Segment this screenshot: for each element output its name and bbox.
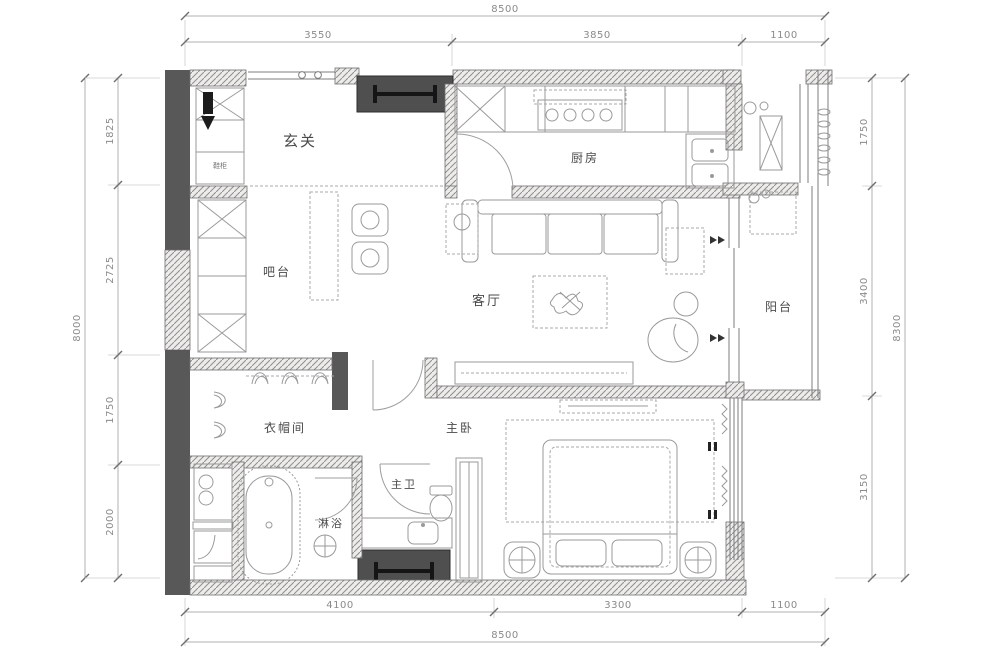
wardrobe — [456, 458, 482, 582]
window-balcony-rail — [812, 186, 818, 398]
door-shower — [315, 478, 357, 520]
door-bedroom-hall — [373, 360, 423, 410]
sofa — [462, 200, 678, 262]
sliding-door-balcony — [710, 198, 739, 382]
armchair — [648, 318, 698, 362]
dimension-bottom: 4100 3300 1100 8500 — [181, 598, 829, 646]
room-label-shoe-cabinet: 鞋柜 — [213, 161, 227, 170]
dim-bottom-total: 8500 — [491, 630, 518, 641]
wall-left-upper — [165, 70, 190, 250]
tv-cabinet-bedroom — [560, 400, 656, 413]
curtain-icons — [708, 404, 727, 519]
stove — [534, 90, 626, 130]
dim-top-total: 8500 — [491, 4, 518, 15]
room-label-living-room: 客厅 — [472, 293, 502, 309]
dim-left-seg-1: 2725 — [105, 256, 116, 283]
dimension-left: 8000 1825 2725 1750 2000 — [72, 74, 160, 582]
wall-left-hatched — [165, 250, 190, 350]
washbasin-cabinet — [194, 464, 232, 520]
bedside-table-right — [680, 542, 716, 578]
dim-right-seg-1: 3400 — [859, 277, 870, 304]
tv-console-living — [455, 362, 633, 384]
room-label-balcony: 阳台 — [765, 299, 793, 314]
room-label-shower: 淋浴 — [318, 517, 344, 530]
dim-left-seg-2: 1750 — [105, 396, 116, 423]
bedside-table-left — [504, 542, 540, 578]
room-label-kitchen: 厨房 — [571, 150, 599, 165]
coffee-table — [533, 276, 607, 328]
dim-top-seg-2: 1100 — [770, 30, 797, 41]
vanity-sink — [362, 518, 452, 548]
bed — [543, 440, 677, 574]
toilet — [430, 486, 452, 521]
wall-left-lower — [165, 350, 190, 595]
dim-left-seg-0: 1825 — [105, 117, 116, 144]
dim-top-seg-1: 3850 — [583, 30, 610, 41]
rug — [506, 420, 714, 522]
wall-stub-column — [332, 352, 348, 410]
dim-left-seg-3: 2000 — [105, 508, 116, 535]
dim-left-total: 8000 — [72, 314, 83, 341]
room-label-master-bedroom: 主卧 — [446, 421, 474, 435]
floor-plan-drawing: 8500 3550 3850 1100 4100 3300 1100 8500 … — [0, 0, 1000, 666]
room-label-bar: 吧台 — [263, 264, 291, 279]
dim-top-seg-0: 3550 — [304, 30, 331, 41]
storage-box — [194, 566, 232, 582]
intercom-icon — [201, 92, 215, 130]
laundry-box — [194, 531, 232, 563]
bar-cabinets — [198, 200, 246, 352]
bar-counter — [310, 192, 338, 300]
kitchen-counter — [455, 86, 735, 132]
room-label-master-bathroom: 主卫 — [391, 478, 417, 491]
round-side-table — [674, 292, 698, 316]
room-label-cloakroom: 衣帽间 — [264, 420, 306, 435]
dim-bottom-seg-0: 4100 — [326, 600, 353, 611]
dim-right-seg-0: 1750 — [859, 118, 870, 145]
bathtub — [238, 466, 300, 584]
utility-equipment — [744, 102, 782, 170]
dim-bottom-seg-2: 1100 — [770, 600, 797, 611]
dim-right-seg-2: 3150 — [859, 473, 870, 500]
dimension-top: 8500 3550 3850 1100 — [181, 4, 829, 66]
walls — [165, 68, 832, 595]
dim-right-total: 8300 — [892, 314, 903, 341]
door-kitchen — [457, 134, 513, 190]
beam-column-top — [357, 76, 453, 112]
side-table-right — [666, 228, 704, 274]
room-label-entry: 玄关 — [283, 132, 317, 150]
dim-bottom-seg-1: 3300 — [604, 600, 631, 611]
bar-stool-1 — [352, 204, 388, 236]
floor-plan-canvas: 8500 3550 3850 1100 4100 3300 1100 8500 … — [0, 0, 1000, 666]
dimension-right: 1750 3400 3150 8300 — [835, 74, 909, 582]
floor-drain-icon — [314, 535, 336, 557]
planter — [749, 190, 796, 234]
bar-stool-2 — [352, 242, 388, 274]
